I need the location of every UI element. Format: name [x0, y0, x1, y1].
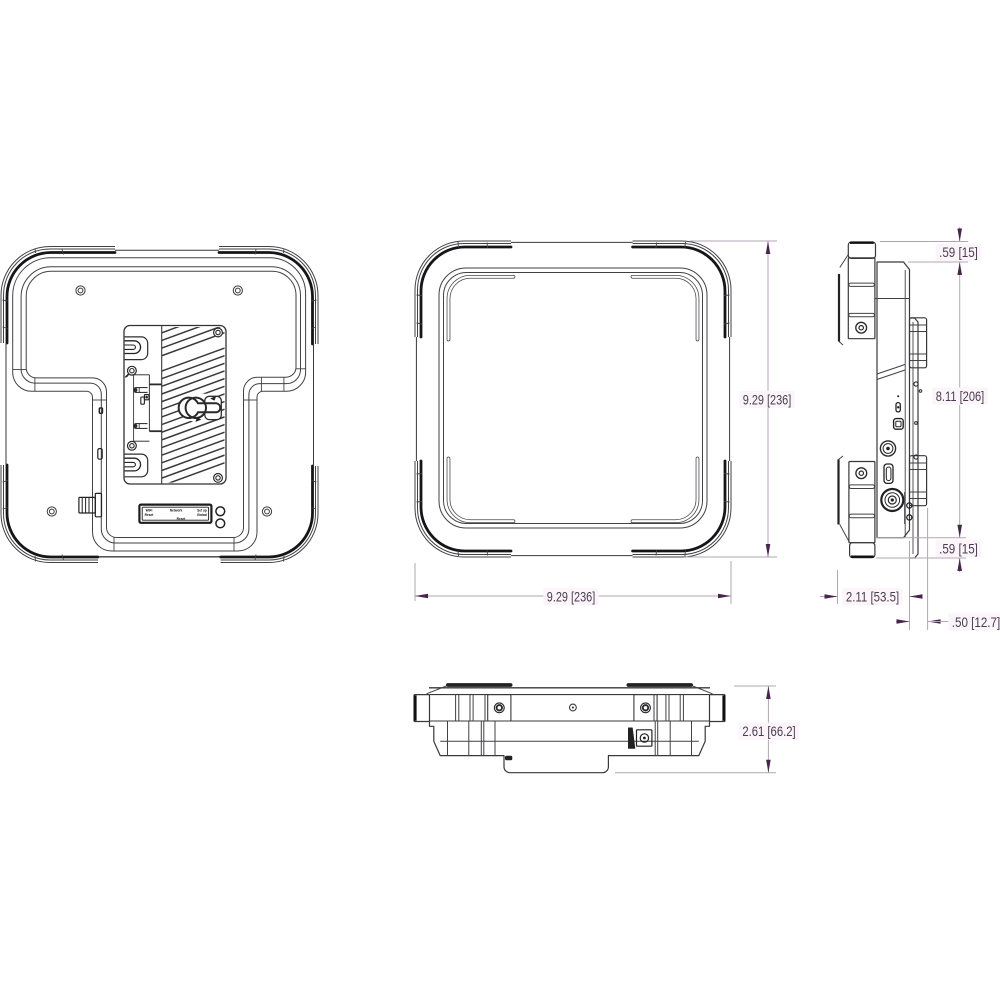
svg-text:2.11 [53.5]: 2.11 [53.5]: [846, 589, 899, 605]
svg-text:8.11 [206]: 8.11 [206]: [936, 388, 985, 404]
svg-text:WiFi: WiFi: [146, 509, 153, 513]
svg-text:Reset: Reset: [177, 517, 187, 521]
svg-text:9.29 [236]: 9.29 [236]: [743, 392, 792, 408]
svg-text:Reset: Reset: [145, 513, 155, 517]
svg-text:Network: Network: [170, 509, 183, 513]
svg-text:.59 [15]: .59 [15]: [939, 244, 978, 260]
svg-text:.59 [15]: .59 [15]: [939, 540, 978, 556]
svg-text:Set up: Set up: [197, 509, 207, 513]
svg-text:2.61 [66.2]: 2.61 [66.2]: [742, 723, 795, 739]
svg-text:9.29 [236]: 9.29 [236]: [547, 589, 596, 605]
svg-text:.50 [12.7]: .50 [12.7]: [952, 614, 1000, 630]
svg-text:Global: Global: [197, 513, 207, 517]
